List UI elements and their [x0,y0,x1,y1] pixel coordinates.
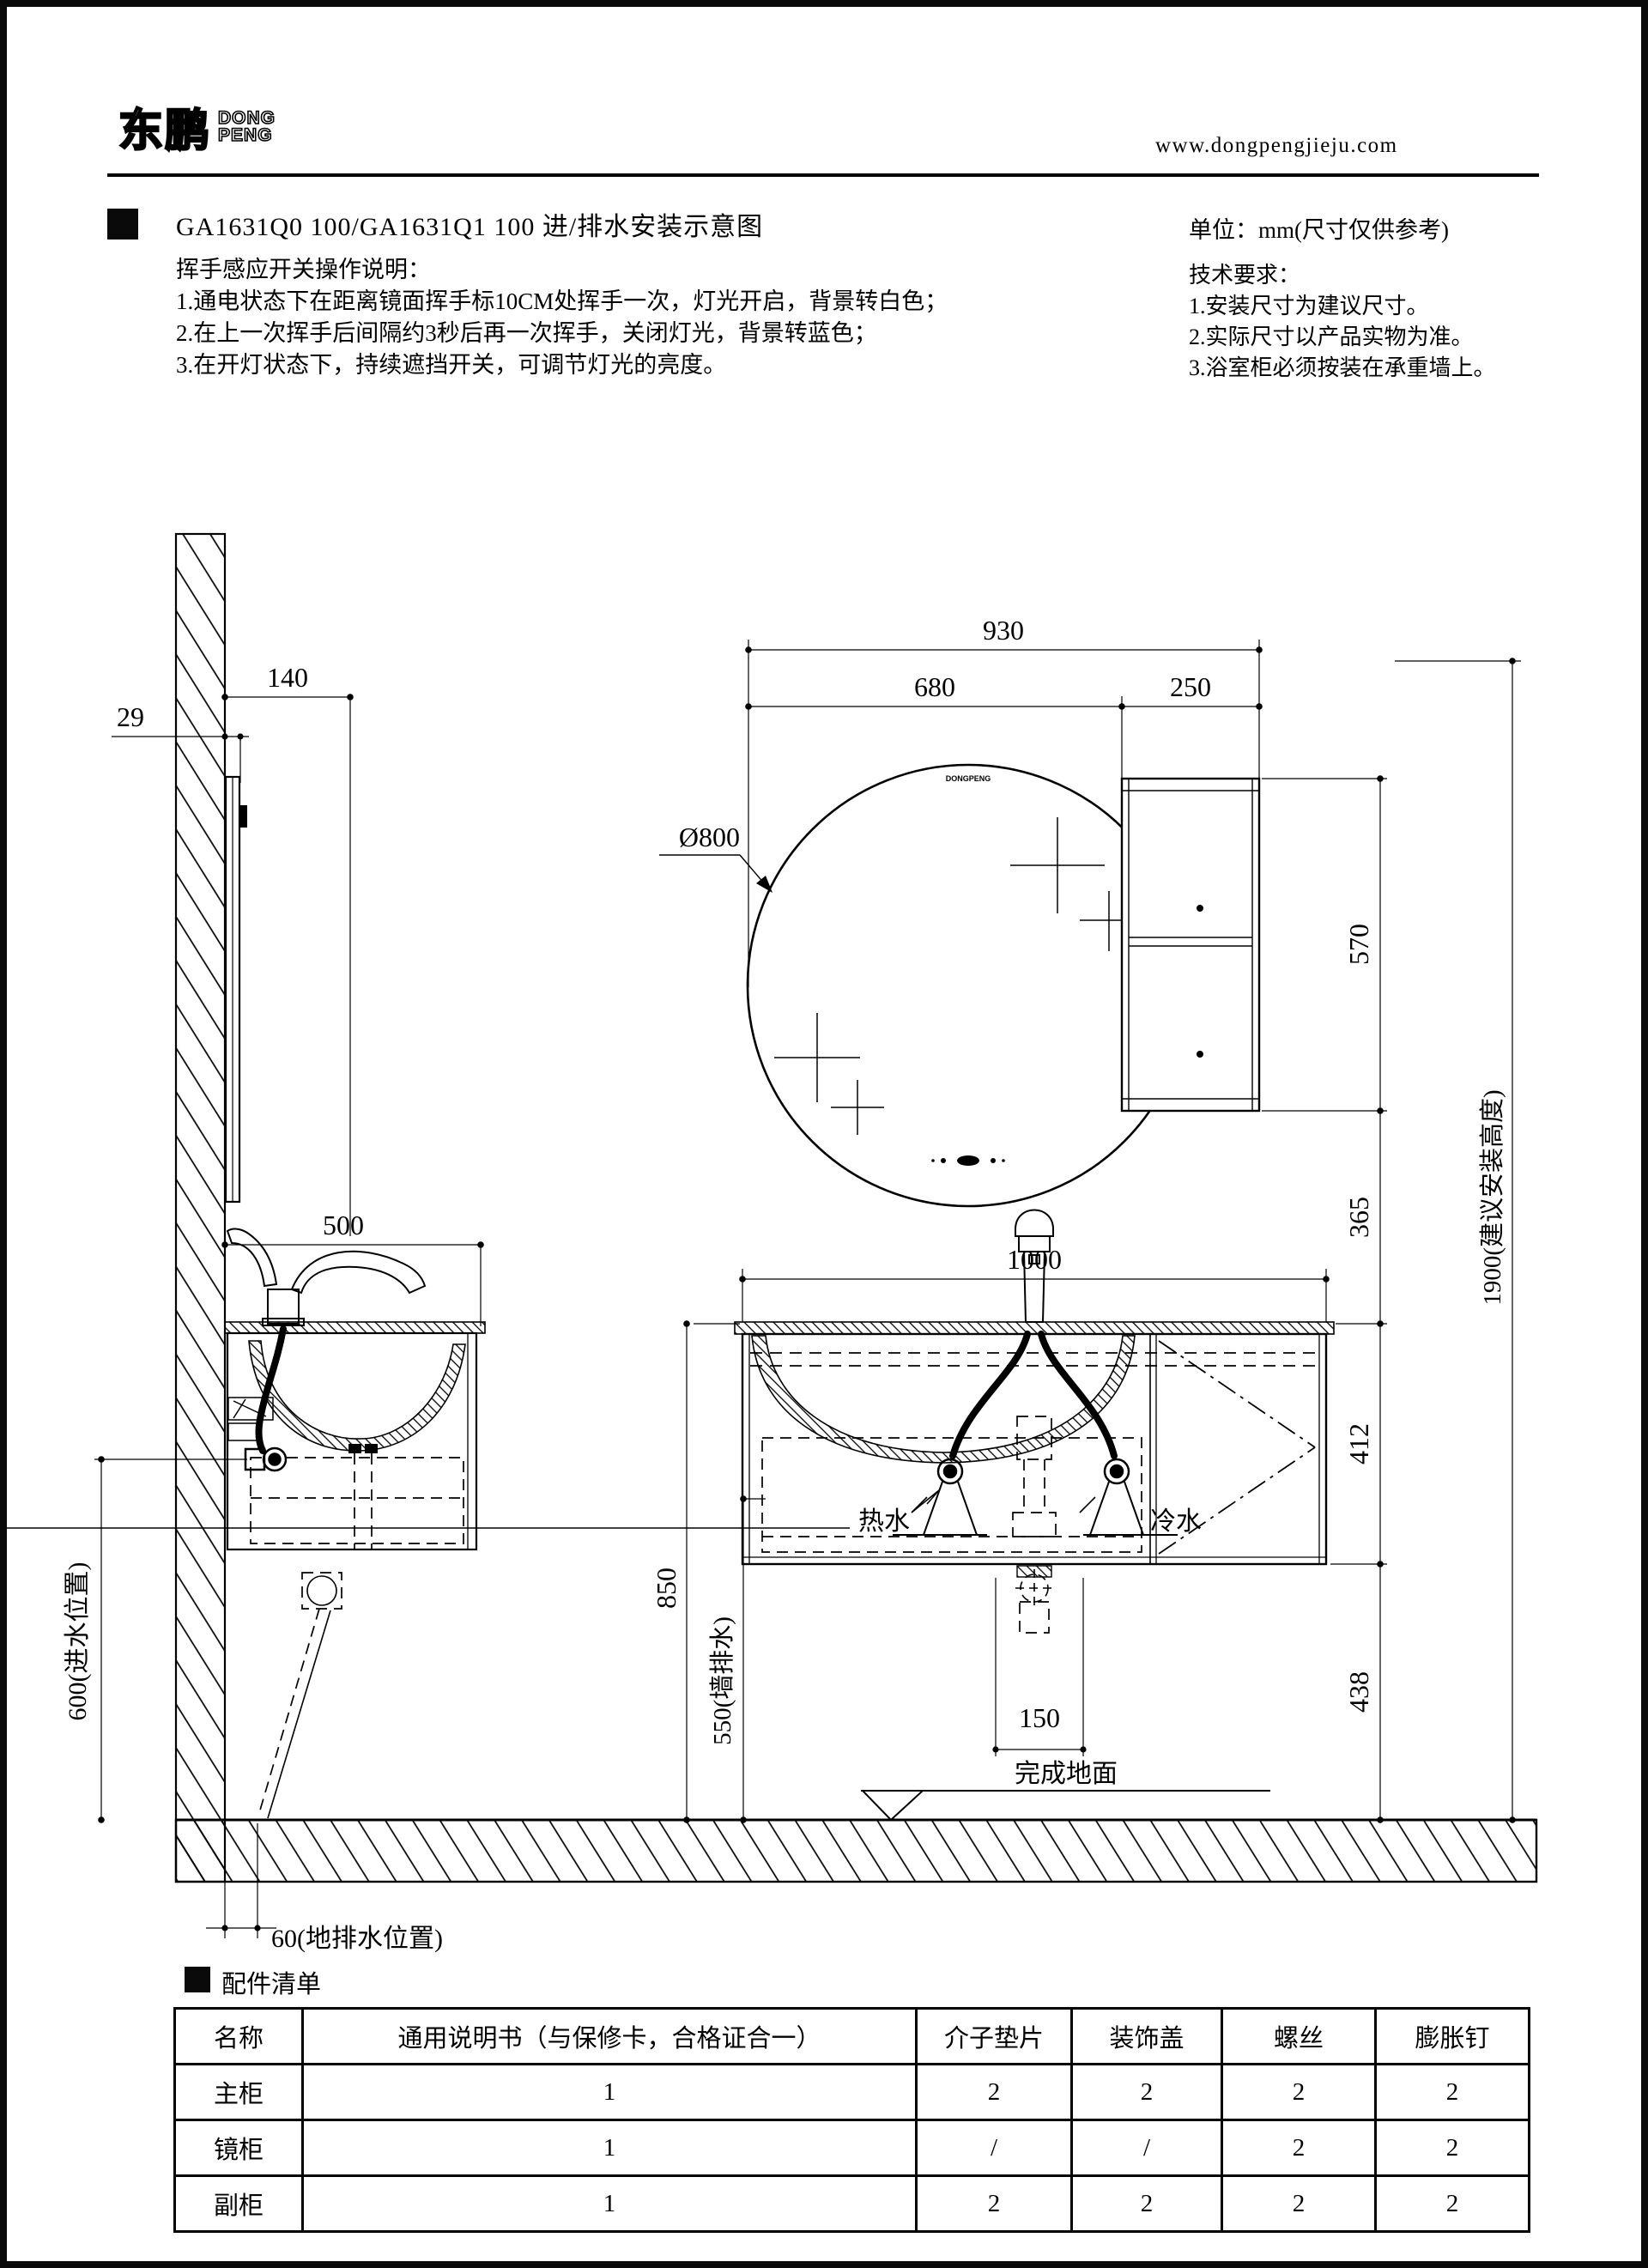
parts-cell: 2 [1222,2176,1376,2232]
parts-col-header: 介子垫片 [917,2009,1072,2065]
parts-row-name: 镜柜 [175,2120,303,2176]
tech-item: 3.浴室柜必须按装在承重墙上。 [1189,353,1496,384]
operation-instructions: 挥手感应开关操作说明： 1.通电状态下在距离镜面挥手标10CM处挥手一次，灯光开… [176,254,948,381]
instruction-item: 2.在上一次挥手后间隔约3秒后再一次挥手，关闭灯光，背景转蓝色； [176,318,948,349]
dim-850-label: 850 [651,1568,682,1609]
side-view [94,694,485,1938]
parts-cell: 2 [1222,2120,1376,2176]
parts-cell: / [917,2120,1072,2176]
page-title: GA1631Q0 100/GA1631Q1 100 进/排水安装示意图 [176,205,763,243]
parts-cell: / [1072,2120,1222,2176]
dim-150-label: 150 [1019,1702,1060,1733]
parts-cell: 2 [917,2176,1072,2232]
parts-header-row: 名称 通用说明书（与保修卡，合格证合一） 介子垫片 装饰盖 螺丝 膨胀钉 [175,2009,1530,2065]
dim-500-label: 500 [323,1210,364,1240]
parts-cell: 2 [1376,2120,1530,2176]
unit-note: 单位：mm(尺寸仅供参考) [1189,211,1449,245]
dim-29-label: 29 [117,701,144,732]
header-divider [107,173,1539,177]
parts-cell: 2 [917,2065,1072,2120]
dim-1900-label: 1900(建议安装高度) [1478,1089,1506,1305]
parts-section-bullet [185,1967,210,1992]
tech-item: 2.实际尺寸以产品实物为准。 [1189,322,1496,353]
hot-water-label: 热水 [858,1507,910,1536]
dim-680-label: 680 [914,671,955,702]
parts-col-header: 螺丝 [1222,2009,1376,2065]
parts-cell: 2 [1072,2065,1222,2120]
angle-valve-side [245,1448,286,1471]
website-url: www.dongpengjieju.com [1155,134,1398,158]
parts-row-name: 副柜 [175,2176,303,2232]
parts-row-name: 主柜 [175,2065,303,2120]
dim-930-label: 930 [983,615,1024,646]
installation-drawing-page: 140 29 500 600(进水位置) 60(地排水位置) 930 680 2… [0,0,1648,2268]
dim-550-label: 550(墙排水) [708,1616,736,1745]
side-cabinet-front [1122,779,1259,1111]
parts-col-header: 膨胀钉 [1376,2009,1530,2065]
finished-floor-marker [861,1791,1270,1820]
tech-item: 1.安装尺寸为建议尺寸。 [1189,291,1496,322]
dim-365-label: 365 [1343,1197,1374,1238]
dim-1000-label: 1000 [1007,1244,1062,1275]
tech-requirements: 技术要求： 1.安装尺寸为建议尺寸。 2.实际尺寸以产品实物为准。 3.浴室柜必… [1189,260,1496,384]
mirror-logo-text: DONGPENG [946,774,991,783]
instructions-heading: 挥手感应开关操作说明： [176,254,948,286]
faucet-side [227,1229,425,1325]
parts-row: 副柜 1 2 2 2 2 [175,2176,1530,2232]
parts-cell: 1 [303,2176,917,2232]
dim-438-label: 438 [1343,1671,1374,1713]
dim-250-label: 250 [1170,671,1211,702]
tech-heading: 技术要求： [1189,260,1496,291]
finished-floor-label: 完成地面 [1015,1760,1118,1788]
parts-cell: 1 [303,2120,917,2176]
cold-water-label: 冷水 [1150,1507,1202,1536]
brand-logo-en: DONG PENG [218,110,276,144]
parts-table: 名称 通用说明书（与保修卡，合格证合一） 介子垫片 装饰盖 螺丝 膨胀钉 主柜 … [173,2007,1530,2233]
parts-row: 主柜 1 2 2 2 2 [175,2065,1530,2120]
dim-600-label: 600(进水位置) [64,1562,92,1721]
brand-logo-cn: 东鹏 [118,94,211,159]
parts-cell: 1 [303,2065,917,2120]
dim-570-label: 570 [1343,924,1374,965]
parts-col-header: 通用说明书（与保修卡，合格证合一） [303,2009,917,2065]
title-bullet [107,209,138,240]
parts-row: 镜柜 1 / / 2 2 [175,2120,1530,2176]
dim-412-label: 412 [1343,1423,1374,1464]
brand-logo: 东鹏 DONG PENG [118,94,276,159]
instruction-item: 3.在开灯状态下，持续遮挡开关，可调节灯光的亮度。 [176,349,948,381]
parts-col-header: 名称 [175,2009,303,2065]
dim-140-label: 140 [267,662,308,693]
instruction-item: 1.通电状态下在距离镜面挥手标10CM处挥手一次，灯光开启，背景转白色； [176,286,948,318]
parts-cell: 2 [1072,2176,1222,2232]
parts-col-header: 装饰盖 [1072,2009,1222,2065]
mirror-front-view [659,640,1521,1822]
parts-cell: 2 [1376,2065,1530,2120]
floor-section [176,1820,1536,1882]
parts-cell: 2 [1222,2065,1376,2120]
dim-60-label: 60(地排水位置) [271,1925,443,1953]
dia-800-label: Ø800 [679,822,740,852]
parts-cell: 2 [1376,2176,1530,2232]
parts-section-title: 配件清单 [221,1964,321,2000]
